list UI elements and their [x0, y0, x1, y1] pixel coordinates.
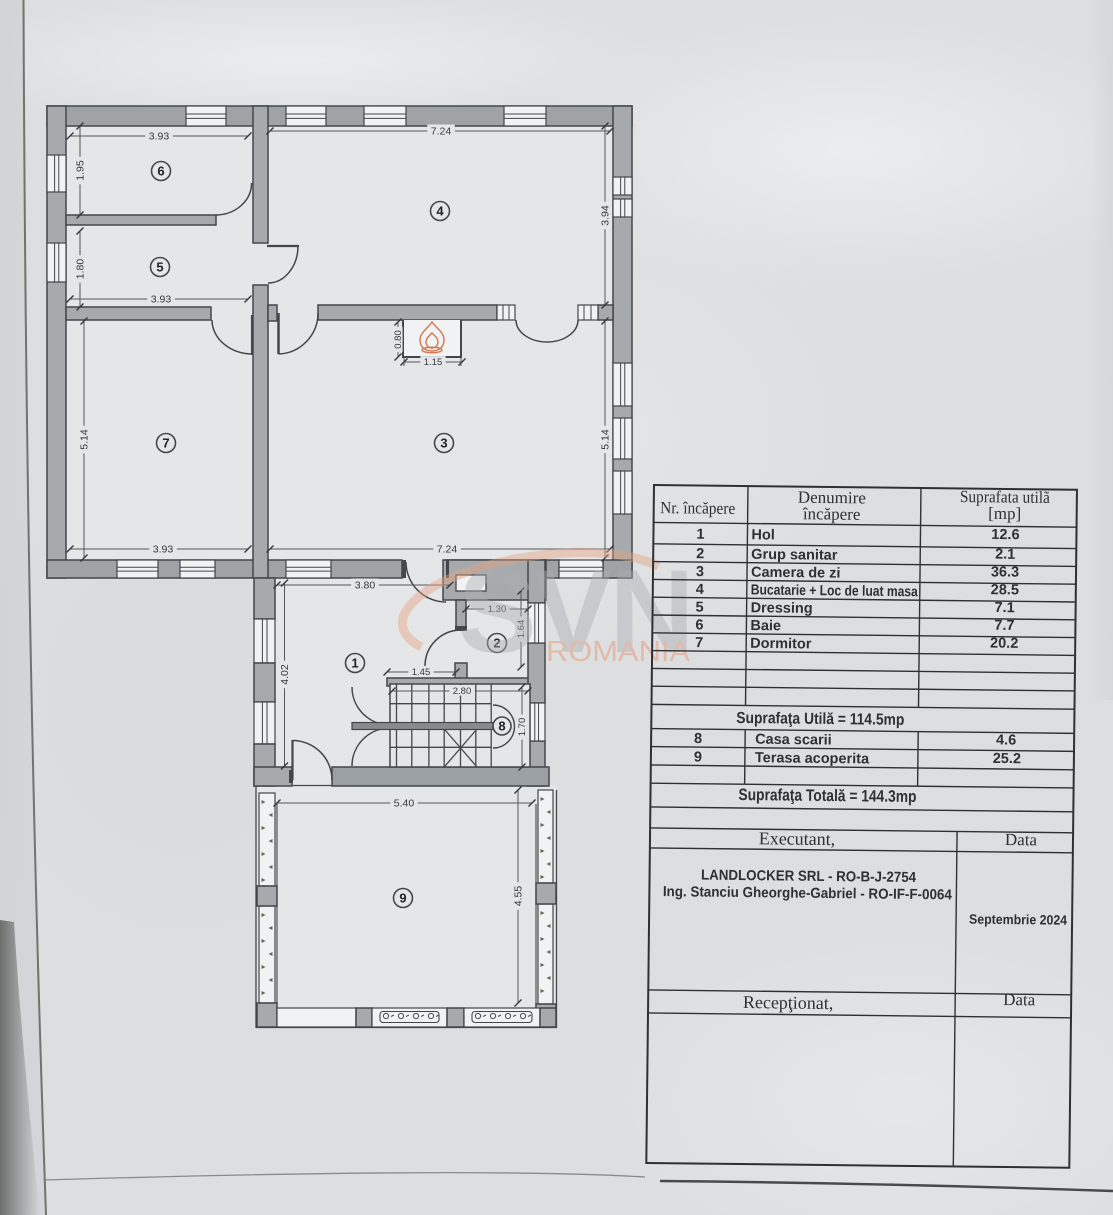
svg-text:4: 4 [436, 204, 444, 219]
svg-text:5.14: 5.14 [599, 429, 611, 450]
svg-text:8: 8 [498, 719, 505, 734]
svg-text:LANDLOCKER SRL - RO-B-J-2754: LANDLOCKER SRL - RO-B-J-2754 [701, 868, 916, 886]
svg-text:6: 6 [157, 164, 164, 179]
svg-text:3.94: 3.94 [599, 205, 611, 226]
svg-text:6: 6 [695, 617, 703, 633]
svg-text:7.1: 7.1 [994, 600, 1014, 616]
svg-text:7.24: 7.24 [437, 543, 458, 555]
svg-text:Nr. încăpere: Nr. încăpere [660, 498, 735, 518]
svg-text:3.93: 3.93 [153, 543, 174, 555]
svg-text:28.5: 28.5 [991, 582, 1019, 598]
svg-text:încăpere: încăpere [802, 504, 861, 524]
svg-text:25.2: 25.2 [993, 751, 1021, 767]
svg-text:2.1: 2.1 [995, 547, 1015, 563]
svg-text:Data: Data [1003, 990, 1036, 1009]
svg-text:Dormitor: Dormitor [750, 636, 812, 653]
svg-text:2: 2 [696, 546, 704, 562]
svg-text:Dressing: Dressing [751, 600, 813, 617]
svg-text:3: 3 [440, 436, 447, 451]
svg-text:2.80: 2.80 [453, 686, 472, 697]
svg-text:7: 7 [162, 436, 169, 451]
svg-text:7.24: 7.24 [431, 125, 452, 137]
svg-text:4.02: 4.02 [279, 664, 291, 685]
svg-text:5: 5 [156, 260, 163, 275]
svg-text:0.80: 0.80 [393, 330, 404, 349]
svg-text:1.95: 1.95 [74, 160, 86, 181]
svg-text:3.93: 3.93 [151, 293, 172, 305]
svg-text:Hol: Hol [751, 527, 775, 543]
svg-text:Data: Data [1005, 830, 1038, 849]
svg-text:3.80: 3.80 [355, 579, 376, 591]
svg-text:3: 3 [696, 564, 704, 580]
svg-text:1: 1 [696, 527, 704, 543]
svg-text:5.14: 5.14 [78, 429, 90, 450]
svg-text:5.40: 5.40 [394, 797, 415, 809]
svg-text:Septembrie 2024: Septembrie 2024 [969, 912, 1068, 928]
svg-text:1.15: 1.15 [424, 357, 443, 368]
svg-text:9: 9 [399, 891, 406, 906]
svg-text:Suprafaţa Utilă = 114.5mp: Suprafaţa Utilă = 114.5mp [736, 710, 904, 729]
svg-text:1.70: 1.70 [517, 718, 528, 737]
svg-text:4: 4 [696, 582, 704, 598]
svg-text:Terasa acoperita: Terasa acoperita [755, 750, 870, 767]
svg-text:12.6: 12.6 [991, 527, 1019, 543]
svg-text:Ing. Stanciu Gheorghe-Gabriel: Ing. Stanciu Gheorghe-Gabriel - RO-IF-F-… [663, 884, 952, 903]
svg-text:8: 8 [694, 731, 702, 747]
svg-text:4.6: 4.6 [996, 732, 1016, 748]
svg-text:[mp]: [mp] [988, 504, 1021, 523]
svg-text:7: 7 [695, 635, 703, 651]
svg-text:Recepţionat,: Recepţionat, [743, 992, 834, 1013]
svg-text:36.3: 36.3 [991, 564, 1019, 580]
svg-text:1.45: 1.45 [412, 667, 431, 678]
svg-text:ROMANIA: ROMANIA [546, 636, 691, 668]
svg-text:1: 1 [351, 656, 358, 671]
svg-text:5: 5 [695, 600, 703, 616]
svg-text:Grup sanitar: Grup sanitar [751, 547, 838, 564]
svg-text:Executant,: Executant, [759, 828, 836, 849]
svg-text:3.93: 3.93 [149, 130, 170, 142]
svg-text:Bucatarie + Loc de luat masa: Bucatarie + Loc de luat masa [751, 582, 919, 600]
svg-text:1.80: 1.80 [74, 259, 86, 280]
svg-text:9: 9 [694, 749, 702, 765]
svg-text:4.55: 4.55 [512, 886, 524, 907]
svg-text:Baie: Baie [750, 618, 781, 634]
svg-text:20.2: 20.2 [990, 636, 1018, 652]
svg-text:Camera de zi: Camera de zi [751, 565, 841, 582]
svg-text:7.7: 7.7 [994, 618, 1014, 634]
svg-text:Suprafaţa Totală = 144.3mp: Suprafaţa Totală = 144.3mp [738, 786, 916, 806]
svg-text:Casa scarii: Casa scarii [755, 732, 832, 749]
